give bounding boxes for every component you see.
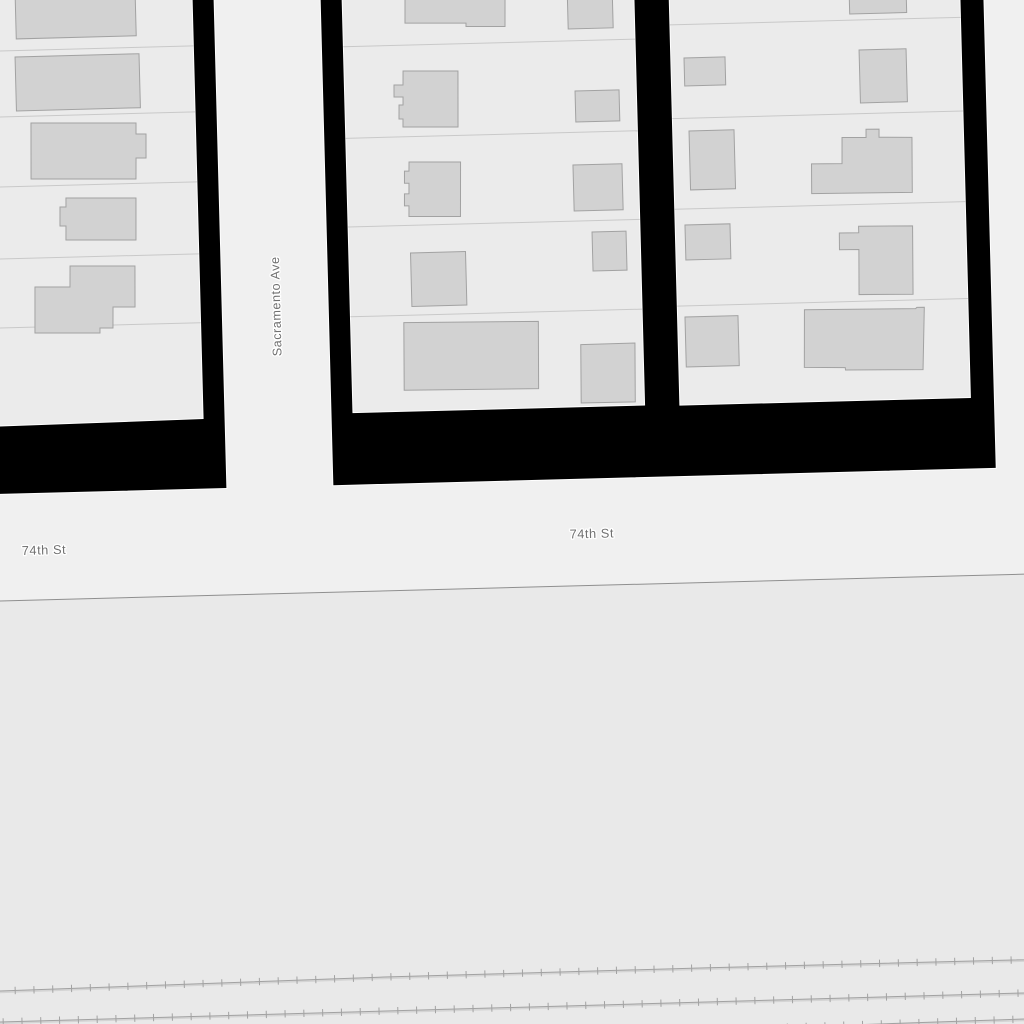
svg-text:74th St: 74th St	[22, 542, 67, 558]
svg-text:Sacramento Ave: Sacramento Ave	[268, 256, 285, 356]
svg-text:74th St: 74th St	[569, 525, 614, 541]
